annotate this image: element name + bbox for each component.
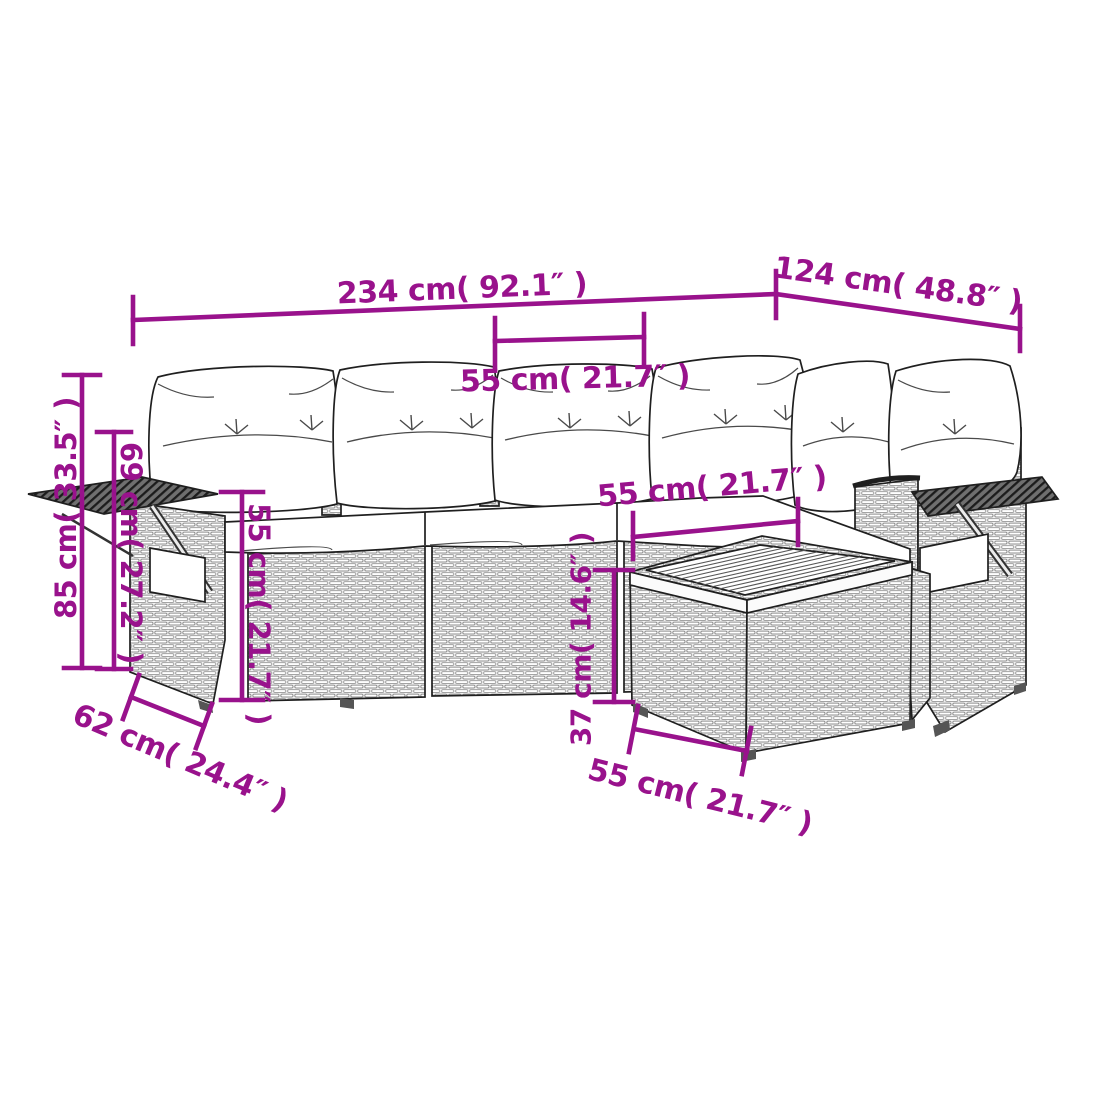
sofa-illustration <box>28 356 1058 762</box>
coffee-table <box>630 536 915 762</box>
dimension-label-total-height: 85 cm( 33.5″ ) <box>49 397 83 619</box>
dimension-back-height: 69 cm( 27.2″ ) <box>97 432 148 669</box>
dimension-label-back-height: 69 cm( 27.2″ ) <box>114 442 148 664</box>
diagram-canvas: 234 cm( 92.1″ ) 124 cm( 48.8″ ) 55 cm( 2… <box>0 0 1100 1100</box>
right-armrest <box>912 477 1058 737</box>
dimension-cushion-width: 55 cm( 21.7″ ) <box>460 314 691 400</box>
dimension-label-table-height: 37 cm( 14.6″ ) <box>565 532 598 746</box>
dimension-label-table-width: 55 cm( 21.7″ ) <box>584 752 816 842</box>
dimension-total-width: 234 cm( 92.1″ ) <box>133 266 776 344</box>
product-dimension-diagram: 234 cm( 92.1″ ) 124 cm( 48.8″ ) 55 cm( 2… <box>0 0 1100 1100</box>
dimension-total-depth: 124 cm( 48.8″ ) <box>772 250 1025 351</box>
sofa-foot <box>340 698 354 709</box>
dimension-total-height: 85 cm( 33.5″ ) <box>49 375 100 668</box>
armrest-pocket <box>150 548 205 602</box>
dimension-label-armrest-height: 55 cm( 21.7″ ) <box>242 503 276 725</box>
dimension-label-cushion-width: 55 cm( 21.7″ ) <box>460 358 691 399</box>
